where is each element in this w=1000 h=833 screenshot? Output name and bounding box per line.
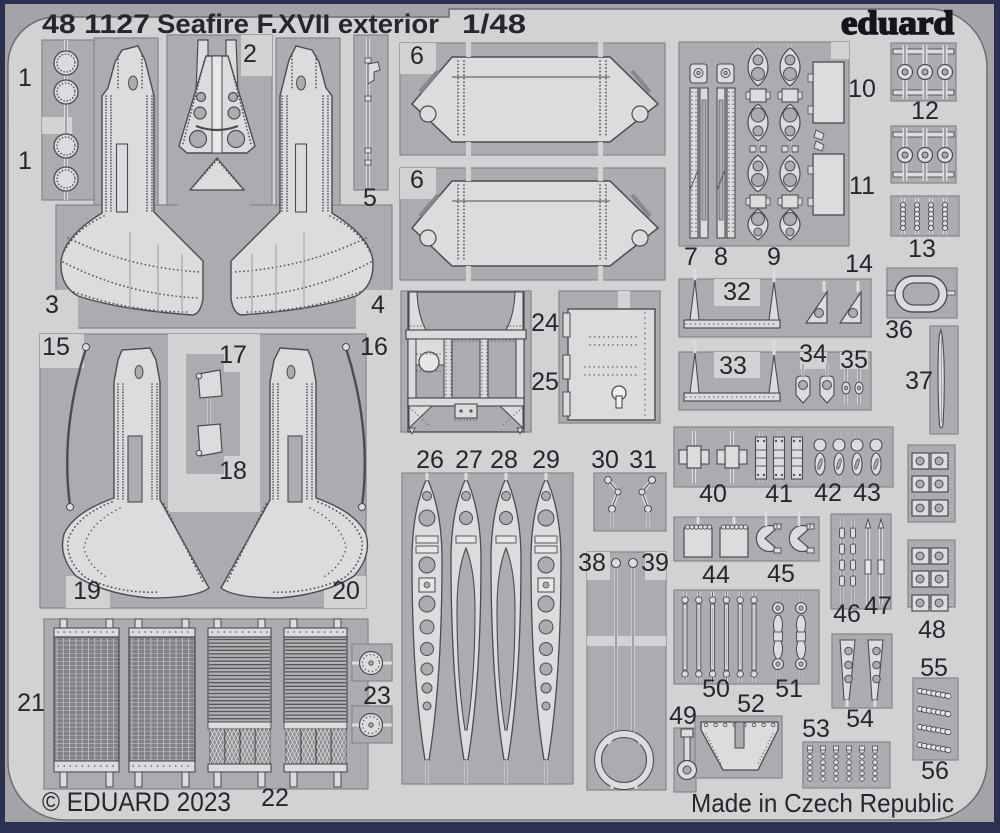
svg-text:36: 36 [885, 316, 913, 344]
svg-text:50: 50 [702, 675, 730, 703]
svg-text:38: 38 [578, 549, 606, 577]
svg-text:23: 23 [363, 682, 391, 710]
svg-text:53: 53 [802, 715, 830, 743]
svg-text:25: 25 [531, 368, 559, 396]
svg-text:45: 45 [767, 560, 795, 588]
svg-text:18: 18 [219, 457, 247, 485]
svg-text:eduard: eduard [841, 5, 954, 42]
svg-text:24: 24 [531, 309, 559, 337]
svg-text:44: 44 [702, 561, 730, 589]
svg-text:5: 5 [363, 184, 377, 212]
svg-text:4: 4 [371, 291, 385, 319]
svg-text:10: 10 [848, 75, 876, 103]
svg-text:40: 40 [699, 480, 727, 508]
svg-text:55: 55 [920, 654, 948, 682]
svg-text:17: 17 [219, 341, 247, 369]
svg-text:1: 1 [18, 64, 32, 92]
svg-text:47: 47 [864, 592, 892, 620]
svg-text:6: 6 [410, 42, 424, 70]
svg-text:9: 9 [767, 243, 781, 271]
svg-text:43: 43 [853, 479, 881, 507]
svg-text:Seafire F.XVII exterior: Seafire F.XVII exterior [157, 9, 439, 39]
svg-text:39: 39 [641, 549, 669, 577]
svg-text:33: 33 [719, 352, 747, 380]
svg-text:3: 3 [45, 291, 59, 319]
svg-text:34: 34 [799, 340, 827, 368]
svg-text:1: 1 [18, 147, 32, 175]
svg-text:32: 32 [723, 278, 751, 306]
svg-text:Made in Czech Republic: Made in Czech Republic [691, 788, 954, 818]
svg-text:51: 51 [775, 675, 803, 703]
svg-text:20: 20 [332, 577, 360, 605]
svg-text:26: 26 [416, 446, 444, 474]
svg-text:56: 56 [921, 757, 949, 785]
svg-text:2: 2 [243, 40, 257, 68]
svg-text:49: 49 [669, 702, 697, 730]
svg-text:37: 37 [905, 367, 933, 395]
svg-text:42: 42 [814, 479, 842, 507]
svg-text:27: 27 [455, 446, 483, 474]
svg-text:7: 7 [684, 243, 698, 271]
svg-text:1/48: 1/48 [462, 9, 526, 39]
svg-text:15: 15 [42, 333, 70, 361]
svg-text:11: 11 [849, 172, 875, 200]
svg-text:8: 8 [714, 243, 728, 271]
svg-text:48 1127: 48 1127 [42, 9, 150, 39]
svg-text:13: 13 [908, 235, 936, 263]
svg-text:19: 19 [73, 577, 101, 605]
svg-text:14: 14 [845, 250, 873, 278]
svg-text:48: 48 [918, 616, 946, 644]
svg-text:22: 22 [261, 784, 289, 812]
svg-text:30: 30 [591, 446, 619, 474]
svg-text:16: 16 [360, 333, 388, 361]
svg-text:6: 6 [410, 166, 424, 194]
svg-text:© EDUARD 2023: © EDUARD 2023 [42, 787, 231, 817]
svg-text:52: 52 [737, 690, 765, 718]
svg-text:28: 28 [490, 446, 518, 474]
svg-text:21: 21 [17, 689, 45, 717]
svg-text:46: 46 [833, 600, 861, 628]
svg-text:41: 41 [765, 480, 793, 508]
svg-text:31: 31 [629, 446, 657, 474]
svg-text:29: 29 [532, 446, 560, 474]
svg-text:35: 35 [840, 346, 868, 374]
svg-text:12: 12 [911, 97, 939, 125]
svg-text:54: 54 [846, 705, 874, 733]
